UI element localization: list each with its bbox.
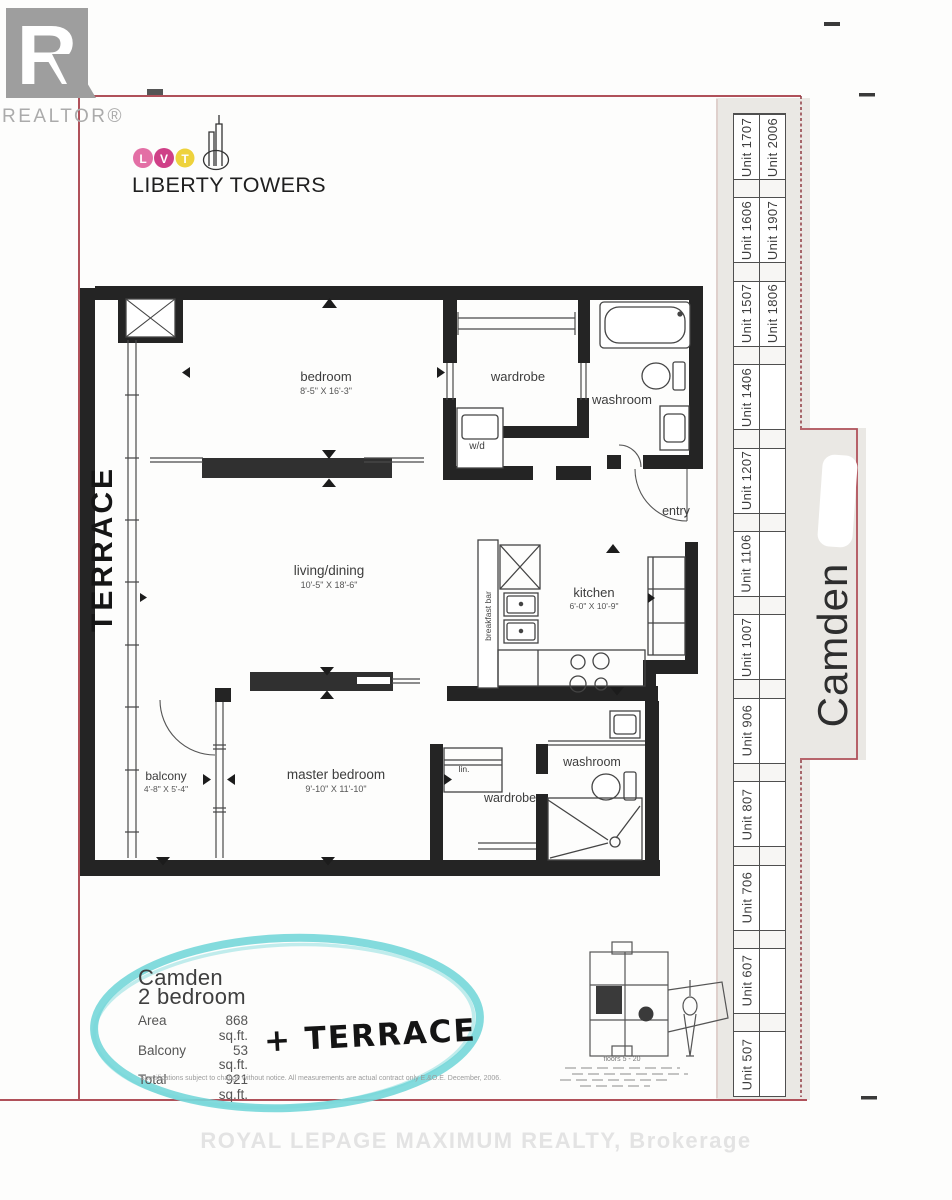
unit-cell-label: Unit 1207 [739, 451, 754, 510]
unit-cell: Unit 1007 [734, 614, 759, 680]
unit-cell-label: Unit 906 [739, 705, 754, 757]
room-label-living: living/dining [294, 563, 365, 578]
unit-cell-label: Unit 2006 [765, 117, 780, 176]
unit-cell-label: Unit 1406 [739, 368, 754, 427]
unit-cell: Unit 1507 [734, 281, 759, 347]
liberty-towers-logo: L V T [133, 115, 229, 170]
unit-cell [760, 948, 785, 1014]
area-label: Area [138, 1014, 200, 1044]
room-label-kitchen: kitchen [573, 585, 614, 600]
unit-cell-label: Unit 1007 [739, 618, 754, 677]
room-dims-kitchen: 6'-0" X 10'-9" [570, 601, 619, 611]
shaft-icon [126, 299, 175, 337]
counter-stove-icon [498, 650, 645, 686]
whiteout-mark [817, 454, 858, 548]
room-dims-living: 10'-5" X 18'-6" [301, 580, 358, 590]
room-label-wardrobe2: wardrobe [483, 791, 536, 805]
label-breakfast-bar: breakfast bar [483, 591, 493, 641]
linen-closet-icon [444, 748, 502, 792]
unit-cell-label: Unit 1806 [765, 284, 780, 343]
washer-dryer-icon [457, 408, 503, 468]
unit-cell [760, 531, 785, 597]
unit-cell: Unit 1707 [734, 114, 759, 180]
unit-cell-label: Unit 706 [739, 872, 754, 924]
unit-cell [760, 698, 785, 764]
label-washer-dryer: w/d [468, 441, 485, 452]
balcony-value: 53 sq.ft. [200, 1044, 248, 1074]
floor-plan: bedroom 8'-5" X 16'-3" wardrobe washroom… [80, 286, 703, 876]
unit-cell [760, 1031, 785, 1097]
unit-cell: Unit 2006 [760, 114, 785, 180]
lvt-letter-t: T [181, 152, 189, 166]
unit-cell-label: Unit 1106 [739, 535, 754, 593]
building-name: LIBERTY TOWERS [132, 173, 326, 197]
room-dims-master: 9'-10" X 11'-10" [305, 784, 366, 794]
unit-cell-label: Unit 1507 [739, 284, 754, 343]
unit-cell: Unit 807 [734, 781, 759, 847]
unit-cell-label: Unit 1707 [739, 117, 754, 176]
towers-icon [204, 115, 229, 170]
room-label-washroom2: washroom [562, 755, 621, 769]
room-label-balcony: balcony [145, 769, 186, 783]
balcony-label: Balcony [138, 1044, 200, 1074]
unit-cell-label: Unit 507 [739, 1038, 754, 1090]
unit-cell: Unit 1106 [734, 531, 759, 597]
unit-cell: Unit 1806 [760, 281, 785, 347]
unit-cell-label: Unit 1606 [739, 201, 754, 260]
key-plan [560, 942, 728, 1086]
realtor-wordmark: REALTOR® [2, 106, 124, 127]
unit-cell [760, 448, 785, 514]
label-linen: lin. [459, 764, 470, 774]
unit-cell-label: Unit 607 [739, 955, 754, 1007]
room-label-entry: entry [662, 504, 691, 518]
unit-cell [760, 865, 785, 931]
summary-model-type: 2 bedroom [138, 987, 478, 1006]
room-label-wardrobe1: wardrobe [490, 369, 545, 384]
unit-column-1: Unit 1707Unit 1606Unit 1507Unit 1406Unit… [733, 113, 760, 1097]
room-label-master: master bedroom [287, 767, 385, 782]
realtor-logo-icon: R [6, 8, 163, 102]
room-label-washroom1: washroom [591, 392, 652, 407]
shower-icon [548, 798, 642, 860]
unit-cell: Unit 507 [734, 1031, 759, 1097]
handwritten-terrace-label: TERRACE [86, 466, 119, 632]
unit-cell: Unit 1606 [734, 197, 759, 263]
plan-door-arcs [160, 445, 687, 755]
unit-cell [760, 614, 785, 680]
room-dims-balcony: 4'-8" X 5'-4" [144, 784, 188, 794]
brokerage-watermark: ROYAL LEPAGE MAXIMUM REALTY, Brokerage [0, 1128, 952, 1154]
unit-cell: Unit 706 [734, 865, 759, 931]
model-name-vertical: Camden [809, 563, 857, 728]
unit-cell-label: Unit 807 [739, 788, 754, 840]
bathtub-icon [600, 302, 690, 348]
unit-summary: Camden 2 bedroom Area 868 sq.ft. Balcony… [138, 968, 478, 1103]
pocket-door-notch [357, 677, 390, 684]
area-value: 868 sq.ft. [200, 1014, 248, 1044]
toilet-icon [642, 363, 670, 389]
plan-markers [140, 298, 655, 866]
water-lines [560, 1068, 688, 1086]
unit-column-2: Unit 2006Unit 1907Unit 1806 [759, 113, 786, 1097]
disclaimer-text: Specifications subject to change without… [140, 1075, 501, 1082]
unit-cell: Unit 1406 [734, 364, 759, 430]
lvt-letter-l: L [139, 152, 146, 166]
toilet2-icon [592, 774, 620, 800]
model-name-panel: Camden [800, 428, 866, 760]
lvt-letter-v: V [160, 152, 168, 166]
unit-cell-label: Unit 1907 [765, 201, 780, 260]
unit-location-marker [596, 986, 622, 1014]
unit-cell [760, 781, 785, 847]
cn-tower-icon [683, 980, 697, 1056]
unit-cell [760, 364, 785, 430]
room-label-bedroom: bedroom [300, 369, 351, 384]
unit-cell: Unit 906 [734, 698, 759, 764]
key-plan-caption: floors 5 - 20 [604, 1056, 641, 1063]
room-dims-bedroom: 8'-5" X 16'-3" [300, 386, 352, 396]
unit-cell: Unit 1207 [734, 448, 759, 514]
unit-cell: Unit 1907 [760, 197, 785, 263]
unit-cell: Unit 607 [734, 948, 759, 1014]
